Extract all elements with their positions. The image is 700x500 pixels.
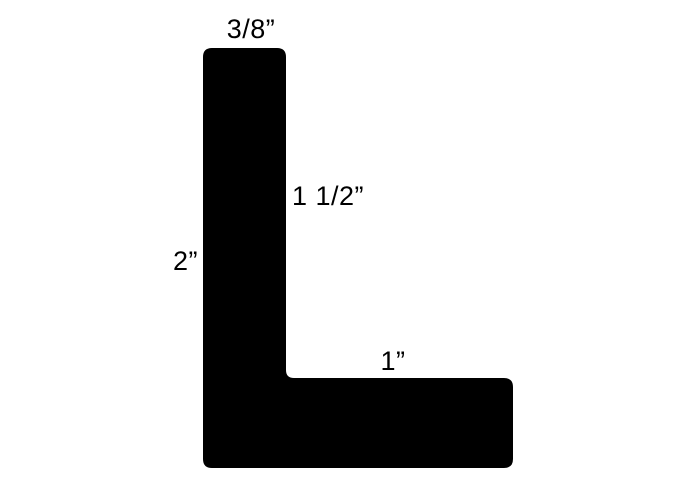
dimension-label-overall-height: 2”: [173, 248, 198, 275]
l-shape-graphic: [0, 0, 700, 500]
dimension-label-inner-leg-height: 1 1/2”: [292, 183, 364, 210]
l-profile-diagram: 3/8” 1 1/2” 2” 1”: [0, 0, 700, 500]
dimension-label-bottom-leg-width: 1”: [380, 348, 405, 375]
l-shape-path: [203, 48, 513, 468]
dimension-label-top-width: 3/8”: [227, 16, 276, 43]
